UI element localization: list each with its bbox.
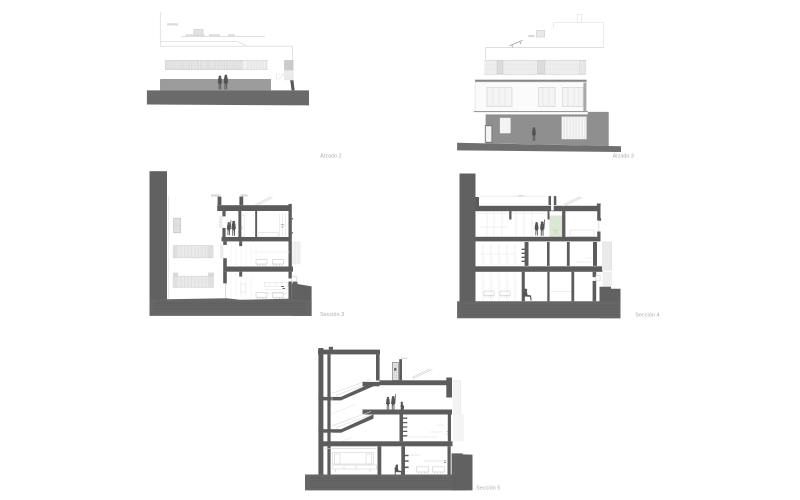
svg-text:Alzado 3: Alzado 3: [613, 154, 634, 160]
svg-text:Sección 4: Sección 4: [635, 313, 659, 319]
svg-text:Sección 5: Sección 5: [476, 486, 500, 492]
svg-text:Sección 3: Sección 3: [320, 312, 344, 318]
svg-text:Alzado 2: Alzado 2: [320, 154, 341, 160]
